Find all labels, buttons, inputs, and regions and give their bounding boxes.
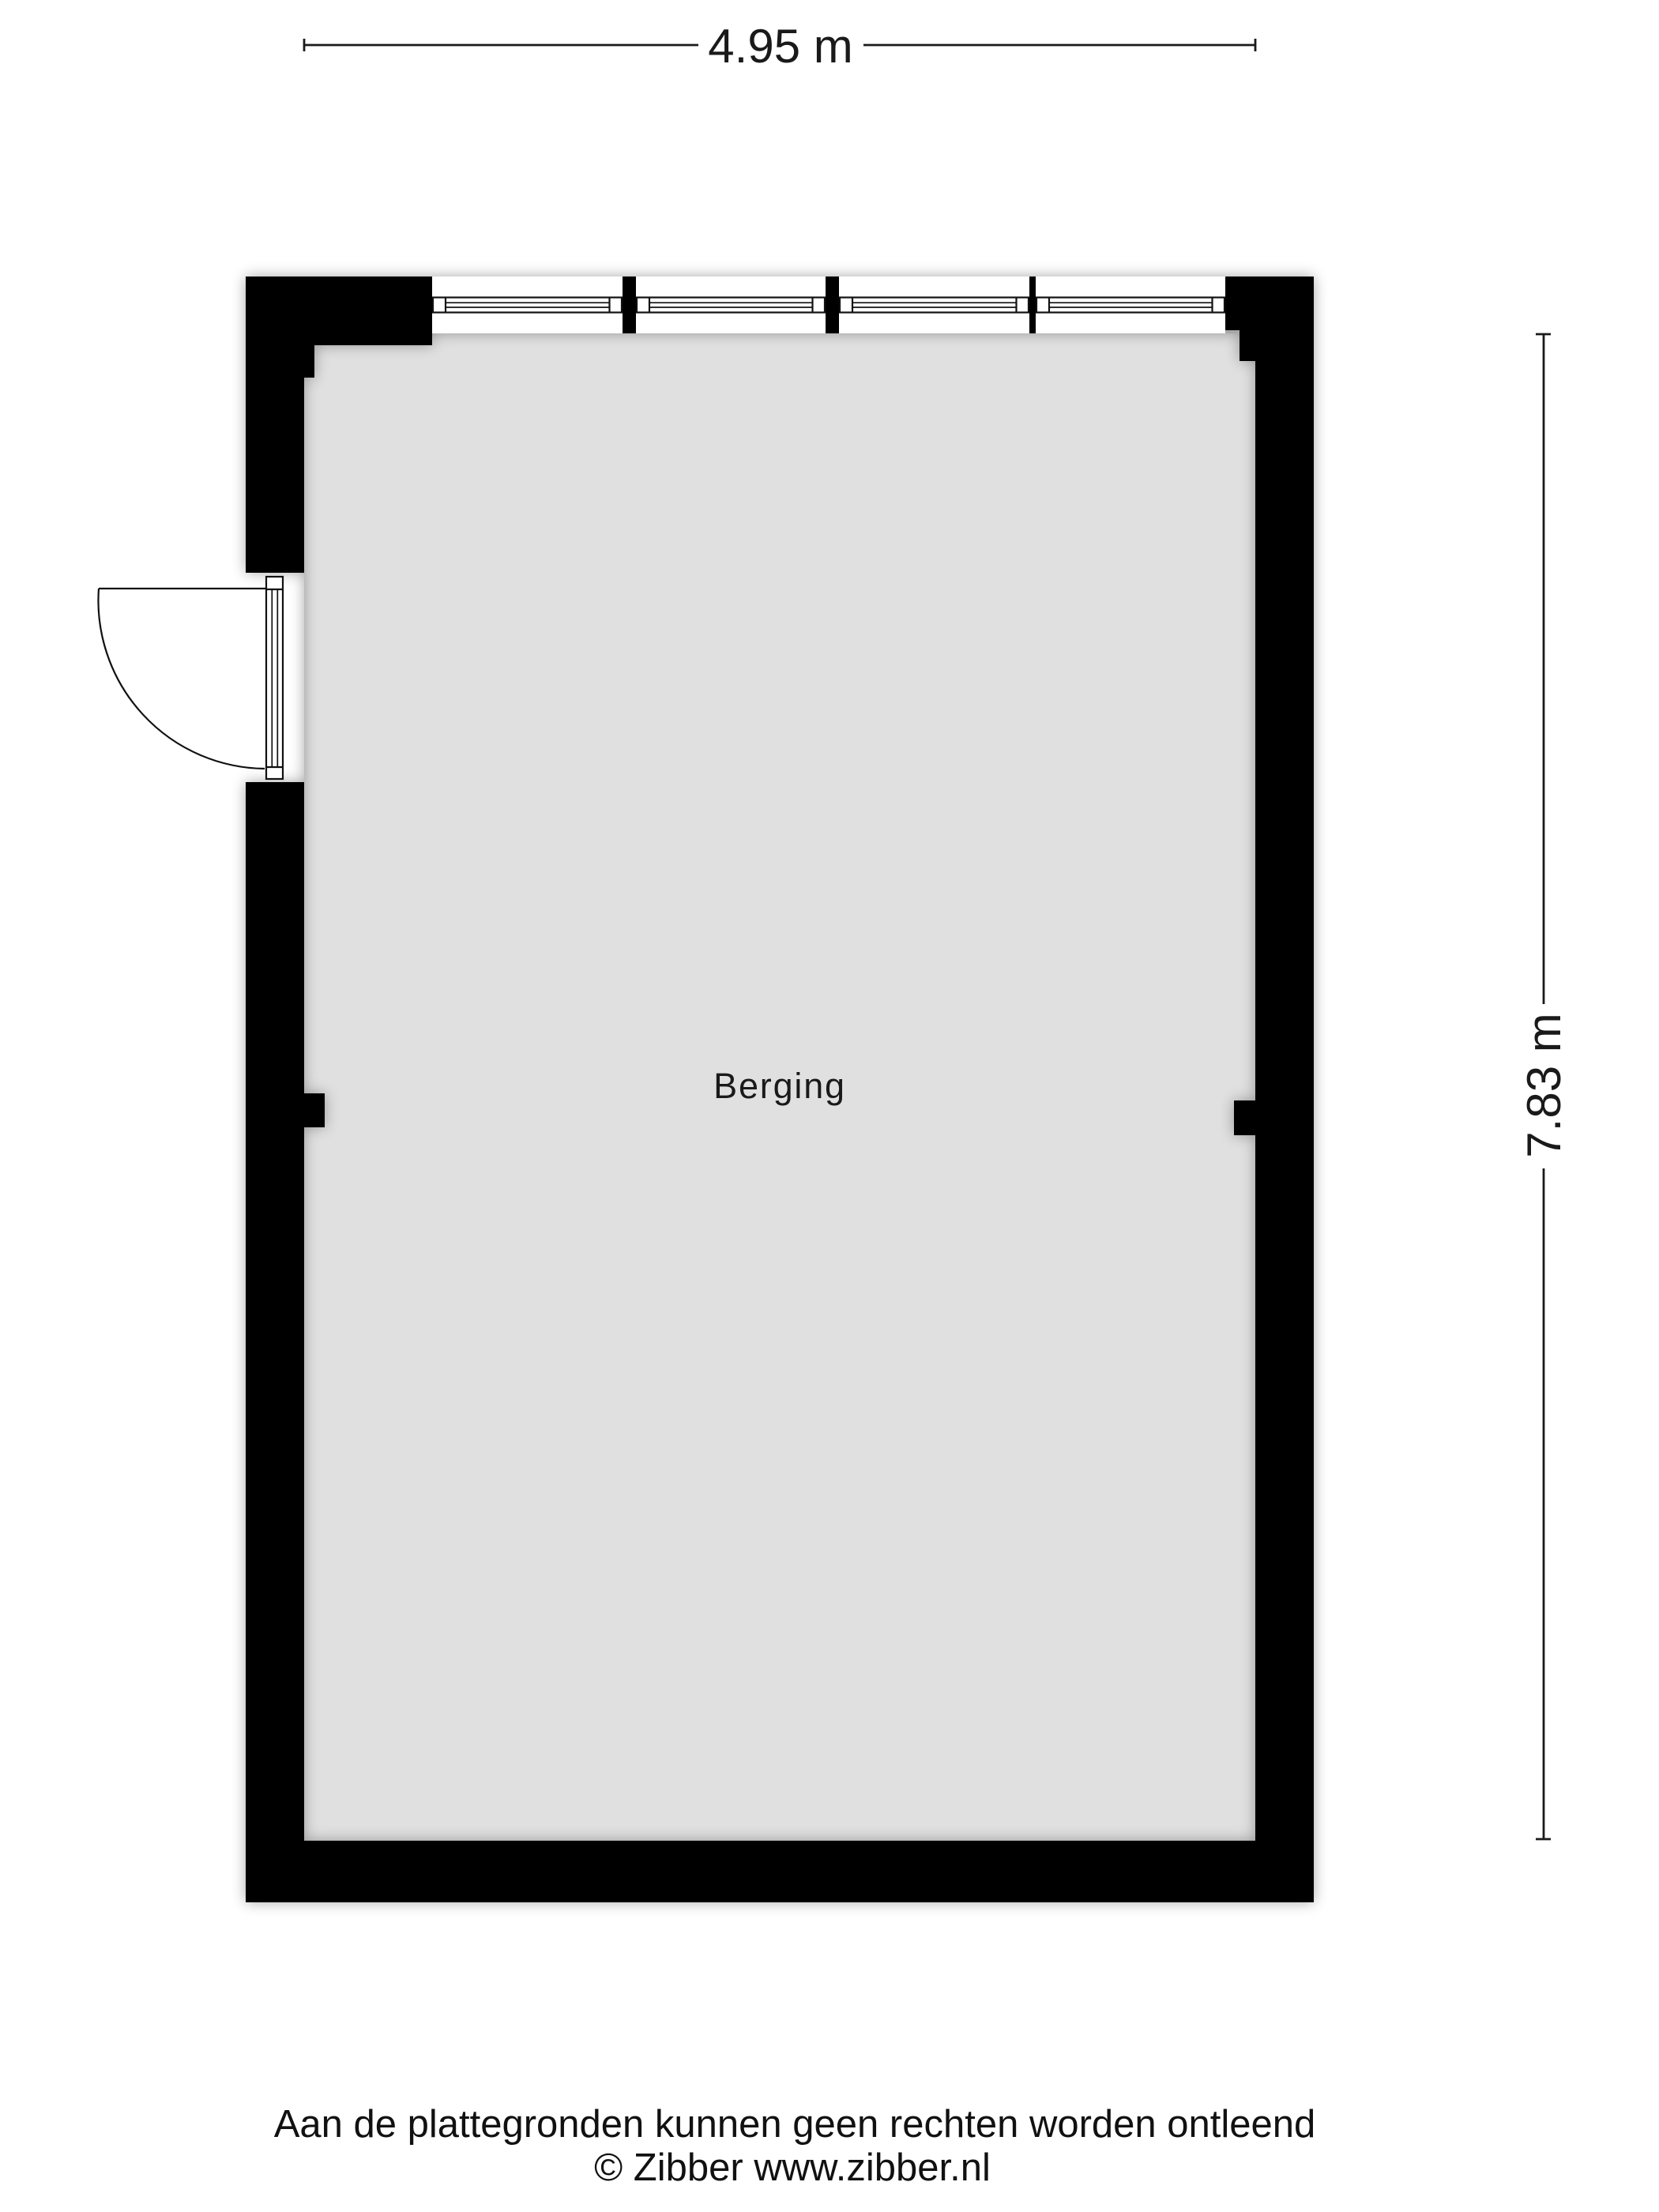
svg-text:© Zibber www.zibber.nl: © Zibber www.zibber.nl [594, 2146, 991, 2189]
svg-text:Aan de plattegronden kunnen ge: Aan de plattegronden kunnen geen rechten… [274, 2103, 1316, 2146]
svg-text:7.83 m: 7.83 m [1518, 1013, 1571, 1157]
svg-text:4.95 m: 4.95 m [708, 20, 852, 73]
svg-text:Berging: Berging [713, 1066, 846, 1106]
